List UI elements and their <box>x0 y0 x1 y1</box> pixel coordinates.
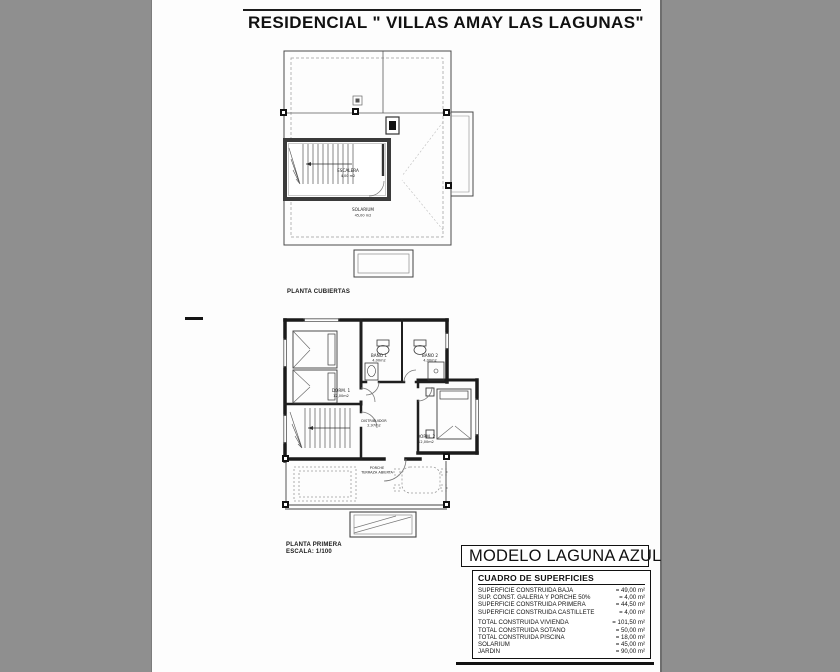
distribuidor-label: DISTRIBUIDOR <box>361 419 387 423</box>
surface-row: SUPERFICIE CONSTRUIDA PRIMERA = 44,50 m² <box>478 601 645 608</box>
solarium-label: SOLARIUM <box>352 207 374 212</box>
stairs-first-floor <box>290 408 350 448</box>
first-floor-plan-drawing: DORM. 1 12,00m2 BAÑO 1 4,00m2 BAÑO 2 4,0… <box>265 300 500 545</box>
roof-ridge-lines <box>284 51 451 113</box>
dorm1-beds <box>293 331 337 403</box>
sheet-background: RESIDENCIAL " VILLAS AMAY LAS LAGUNAS" <box>0 0 840 672</box>
exterior-stair <box>350 512 416 537</box>
bano1-label: BAÑO 1 <box>371 353 387 358</box>
surface-row: SOLARIUM = 45,00 m² <box>478 641 645 648</box>
title-rule <box>243 9 641 11</box>
surfaces-table-title: CUADRO DE SUPERFICIES <box>478 573 645 585</box>
escalera-label: ESCALERA <box>337 168 359 173</box>
roof-plan-drawing: ESCALERA 4,00 m2 SOLARIUM 45,00 m2 <box>270 45 485 280</box>
roof-vent-marker <box>353 96 362 105</box>
first-plan-label: PLANTA PRIMERA <box>286 542 342 548</box>
porch <box>282 453 450 509</box>
porche-label: PORCHE <box>370 466 384 470</box>
surfaces-table: CUADRO DE SUPERFICIES SUPERFICIE CONSTRU… <box>472 570 651 659</box>
surface-row: TOTAL CONSTRUIDA PISCINA = 18,00 m² <box>478 634 645 641</box>
surface-row: TOTAL CONSTRUIDA SOTANO = 50,00 m² <box>478 627 645 634</box>
fold-mark <box>185 317 203 320</box>
bano1-area: 4,00m2 <box>372 359 385 363</box>
surface-row: SUPERFICIE CONSTRUIDA CASTILLETE = 4,00 … <box>478 609 645 616</box>
porch-pillars <box>282 453 450 508</box>
sheet-bottom-rule <box>456 662 654 665</box>
roof-planter <box>354 250 413 277</box>
chimney <box>386 117 399 134</box>
surface-row: SUPERFICIE CONSTRUIDA BAJA = 49,00 m² <box>478 587 645 594</box>
sheet-title: RESIDENCIAL " VILLAS AMAY LAS LAGUNAS" <box>248 13 638 33</box>
porche-area: TERRAZA ABIERTA <box>360 471 393 475</box>
distribuidor-area: 2,97m2 <box>367 424 380 428</box>
solarium-area: 45,00 m2 <box>355 214 372 218</box>
dorm2-bed <box>426 388 471 439</box>
roof-plan-caption: PLANTA CUBIERTAS <box>287 289 350 296</box>
dorm2-label: DORM. 2 <box>417 434 436 439</box>
bano2-label: BAÑO 2 <box>422 353 438 358</box>
dorm2-area: 12,00m2 <box>418 440 434 444</box>
bano2-area: 4,00m2 <box>423 359 436 363</box>
first-plan-scale: ESCALA: 1/100 <box>286 549 332 555</box>
surface-row: TOTAL CONSTRUIDA VIVIENDA = 101,50 m² <box>478 619 645 626</box>
model-name: MODELO LAGUNA AZUL <box>469 547 662 566</box>
first-plan-caption: PLANTA PRIMERA ESCALA: 1/100 <box>286 542 342 556</box>
drawing-sheet: RESIDENCIAL " VILLAS AMAY LAS LAGUNAS" <box>152 0 660 672</box>
model-name-box: MODELO LAGUNA AZUL <box>461 545 649 567</box>
surface-row: JARDIN = 90,00 m² <box>478 648 645 655</box>
dorm1-area: 12,00m2 <box>333 394 349 398</box>
dorm1-label: DORM. 1 <box>332 388 351 393</box>
surface-row: SUP. CONST. GALERIA Y PORCHE 50% = 4,00 … <box>478 594 645 601</box>
roof-slope-dashes <box>402 122 443 230</box>
escalera-area: 4,00 m2 <box>341 174 356 178</box>
